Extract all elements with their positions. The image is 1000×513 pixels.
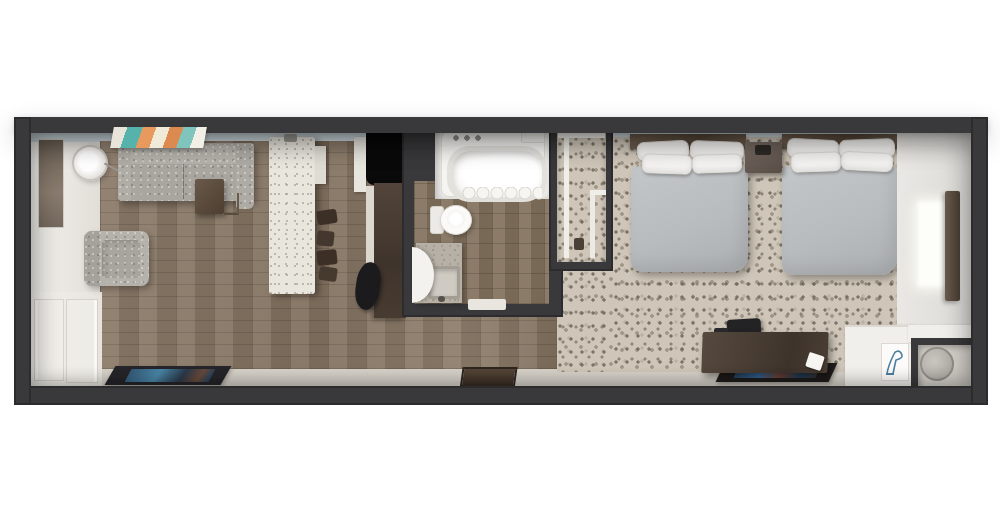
side-table-frame [224,193,239,215]
kitchen-island [269,137,315,294]
closet-shelf-right-rail [590,195,595,258]
wall-artwork [110,127,207,148]
bed2-pillow [841,151,894,173]
mirror [38,139,64,228]
outer-wall-right [971,117,988,405]
sofa-seat-divider [183,164,184,199]
bed-1 [631,166,748,272]
bed1-pillow [642,153,693,175]
bar-stool [316,249,337,266]
bed-2 [782,166,897,275]
mini-fridge [920,347,954,381]
toilet-seat [447,210,465,228]
armchair-seat [102,240,140,278]
tv [366,132,405,185]
bed1-pillow [692,153,743,174]
floorplan-scene [0,0,1000,513]
entry-door-panel [34,299,64,381]
side-table [195,179,224,214]
shoe-artwork [881,343,909,381]
floor-lamp [72,145,108,181]
closet-item [574,238,584,250]
bar-stool [318,266,338,282]
tub-faucet-controls [452,134,482,142]
bar-stool [316,209,338,226]
entry-door-panel [66,299,98,383]
outer-wall-left [14,117,31,405]
outer-wall-bottom [14,386,988,405]
island-faucet [284,134,297,142]
curtain-panel [945,191,960,301]
island-side-shelf [315,146,326,184]
bedroom-carpet-extension [557,270,613,372]
vanity-accessory [438,296,445,302]
shower-curtain [462,187,542,200]
bathroom-threshold [468,299,506,310]
closet-shelf-rail [564,138,569,258]
bar-stool [316,230,334,247]
bed2-pillow [791,151,842,173]
sofa-arm-left [118,143,131,200]
nightstand-item [755,145,771,155]
tv-column [354,137,366,192]
door-mat-living-print [125,369,216,382]
armchair-back [84,231,100,286]
shoe-art-graphic [882,344,908,380]
